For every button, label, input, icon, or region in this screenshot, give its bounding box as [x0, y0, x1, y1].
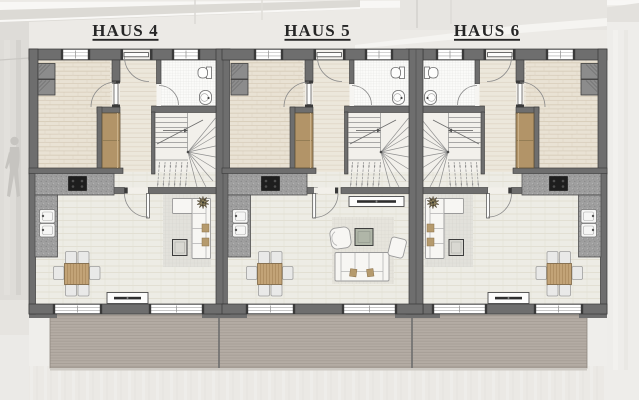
svg-text:HAUS 4: HAUS 4	[92, 21, 159, 40]
svg-text:HAUS 6: HAUS 6	[454, 21, 521, 40]
svg-text:HAUS 5: HAUS 5	[284, 21, 351, 40]
